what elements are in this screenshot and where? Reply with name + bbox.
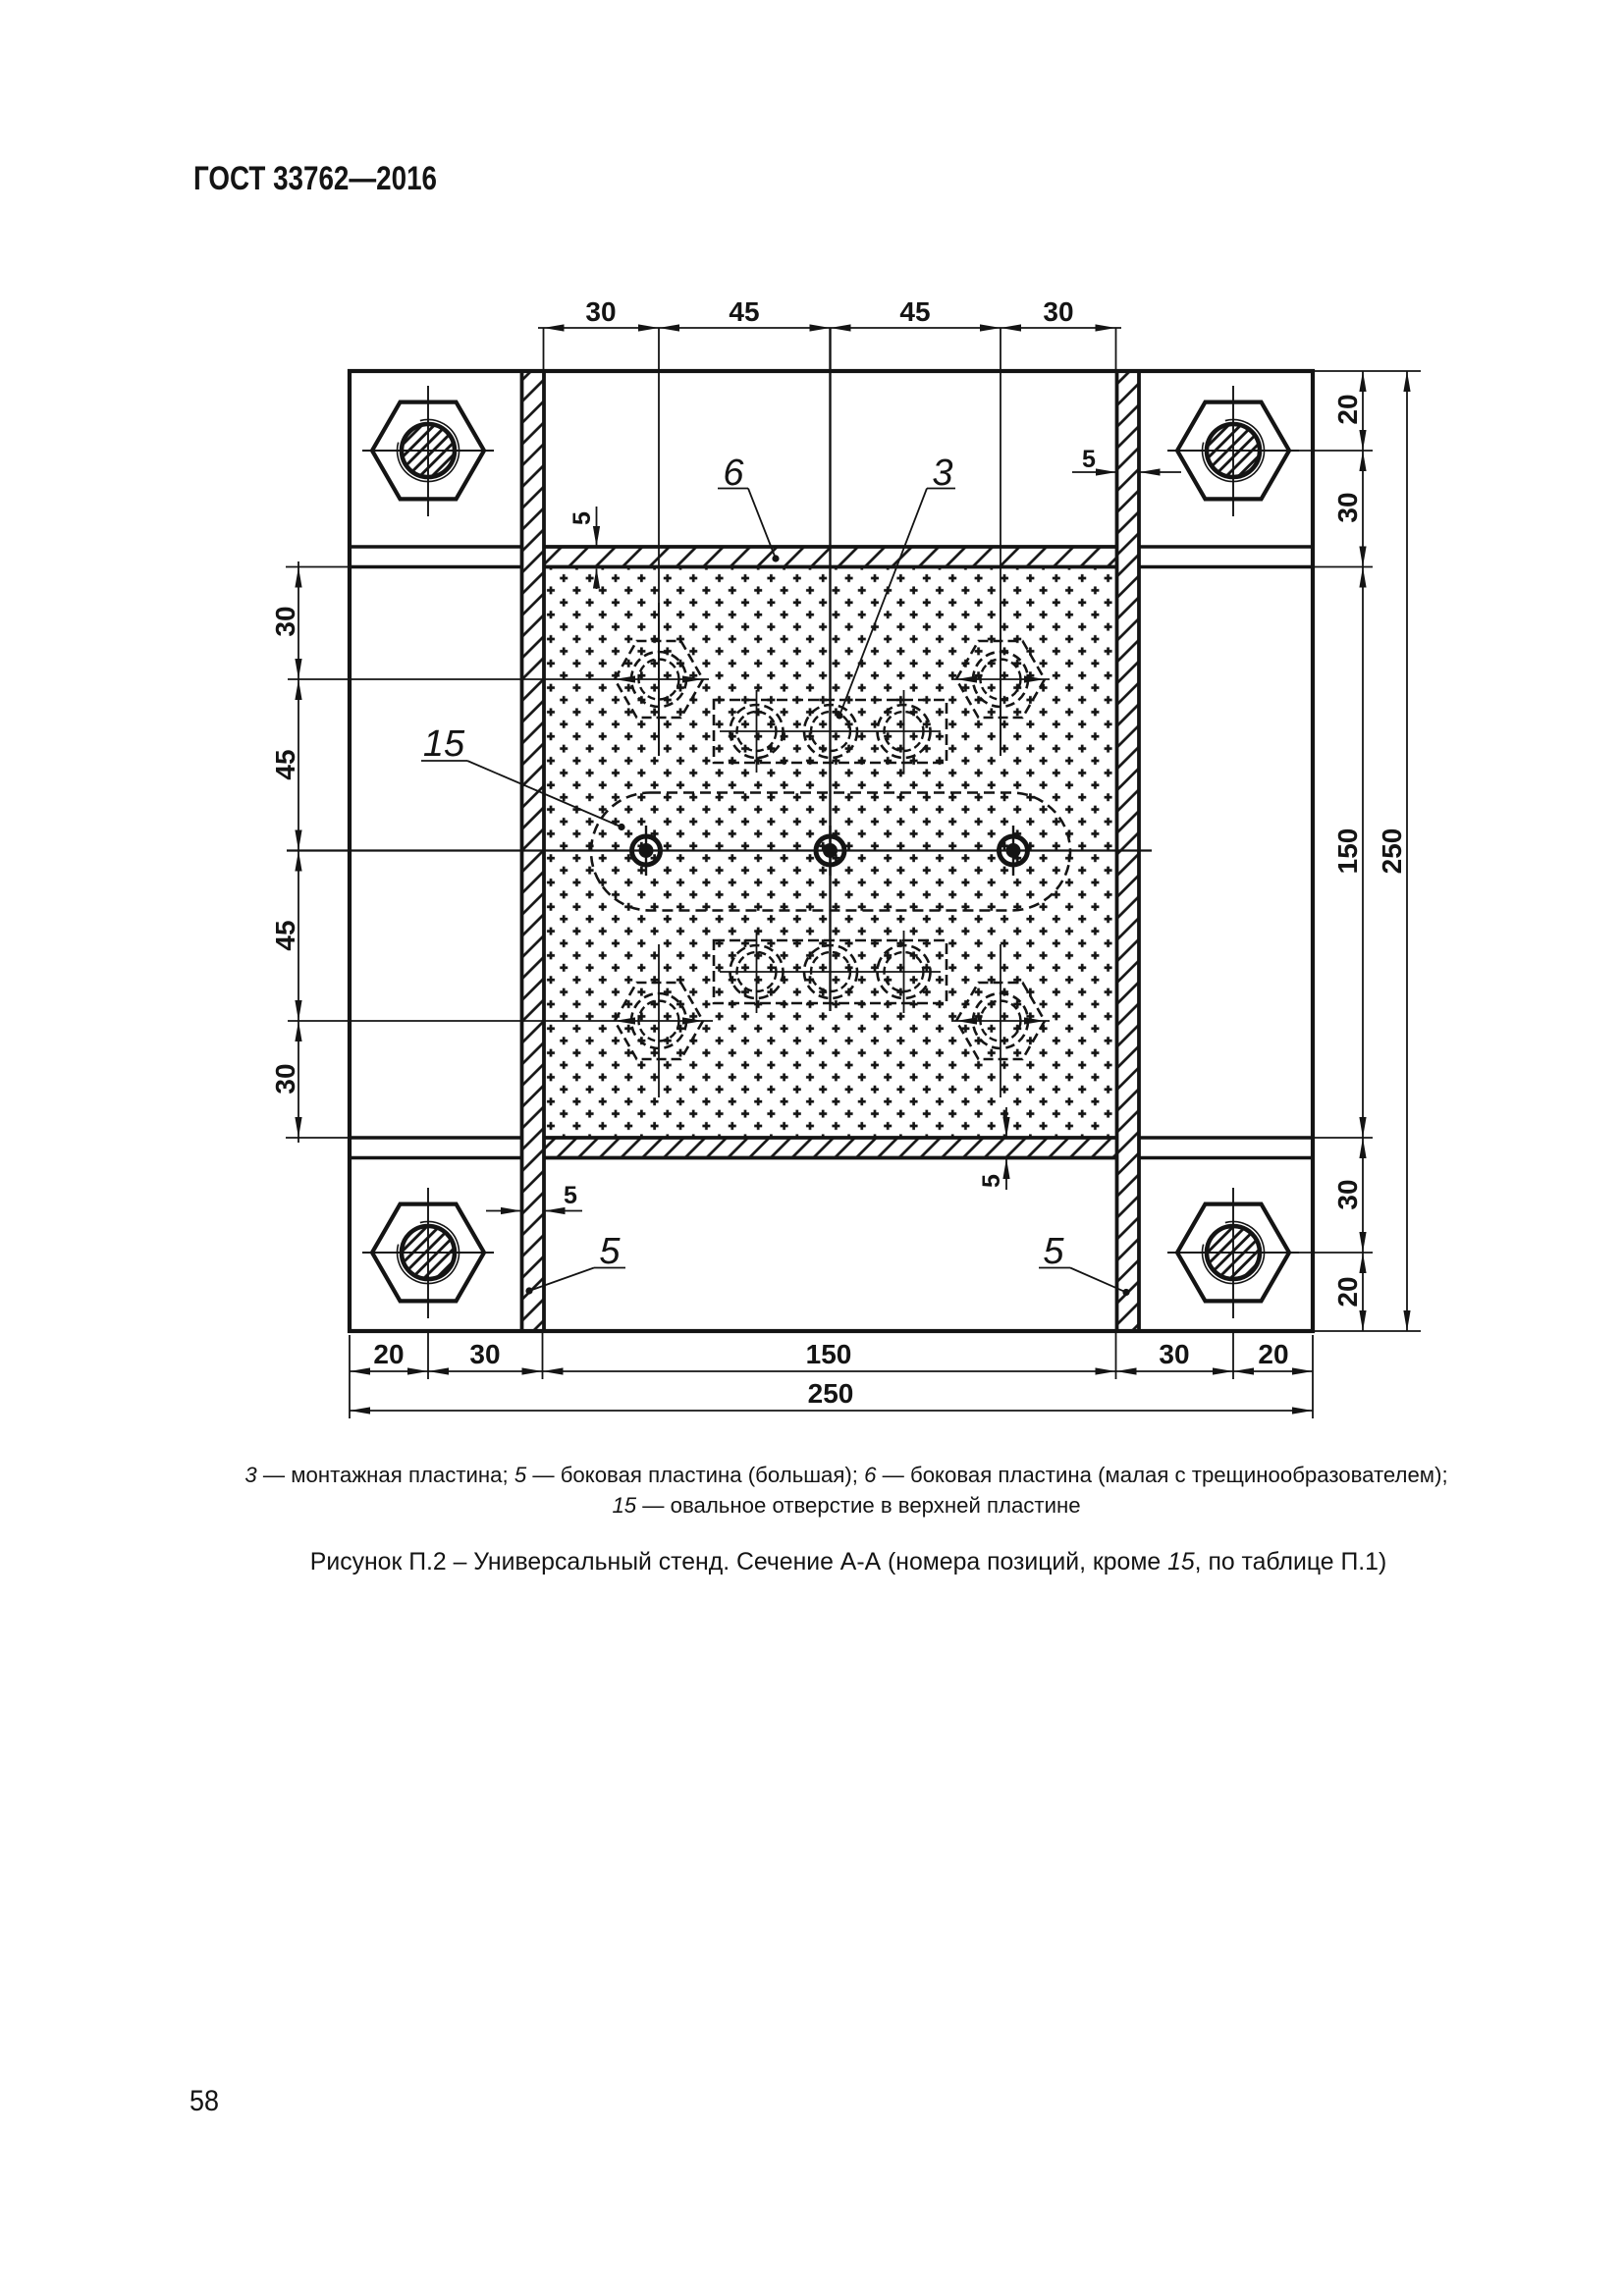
- svg-text:58: 58: [189, 2085, 219, 2117]
- svg-text:5: 5: [1043, 1231, 1064, 1272]
- svg-text:5: 5: [564, 1182, 577, 1209]
- svg-text:30: 30: [469, 1339, 500, 1369]
- svg-text:5: 5: [599, 1231, 621, 1272]
- svg-text:250: 250: [1377, 828, 1407, 875]
- svg-text:30: 30: [585, 296, 616, 327]
- svg-text:30: 30: [1332, 1179, 1363, 1209]
- svg-text:30: 30: [1332, 492, 1363, 522]
- svg-text:250: 250: [808, 1378, 854, 1409]
- svg-text:20: 20: [1258, 1339, 1288, 1369]
- svg-text:30: 30: [270, 606, 300, 636]
- svg-text:45: 45: [270, 920, 300, 950]
- svg-text:30: 30: [1043, 296, 1073, 327]
- svg-text:15: 15: [423, 723, 465, 765]
- svg-text:5: 5: [978, 1174, 1005, 1188]
- svg-text:150: 150: [1332, 828, 1363, 875]
- svg-text:5: 5: [568, 511, 596, 525]
- svg-text:20: 20: [1332, 1276, 1363, 1307]
- svg-text:45: 45: [729, 296, 759, 327]
- svg-text:ГОСТ 33762—2016: ГОСТ 33762—2016: [193, 160, 437, 197]
- svg-text:Рисунок П.2 – Универсальный ст: Рисунок П.2 – Универсальный стенд. Сечен…: [310, 1549, 1386, 1575]
- svg-text:5: 5: [1082, 446, 1096, 473]
- svg-text:150: 150: [806, 1339, 852, 1369]
- svg-text:30: 30: [1159, 1339, 1189, 1369]
- svg-text:45: 45: [899, 296, 930, 327]
- svg-text:20: 20: [373, 1339, 404, 1369]
- svg-text:30: 30: [270, 1063, 300, 1094]
- svg-text:15 — овальное отверстие в верх: 15 — овальное отверстие в верхней пласти…: [612, 1493, 1080, 1518]
- svg-text:20: 20: [1332, 394, 1363, 424]
- svg-text:45: 45: [270, 749, 300, 779]
- svg-text:3 — монтажная пластина; 5 — бо: 3 — монтажная пластина; 5 — боковая плас…: [244, 1463, 1447, 1487]
